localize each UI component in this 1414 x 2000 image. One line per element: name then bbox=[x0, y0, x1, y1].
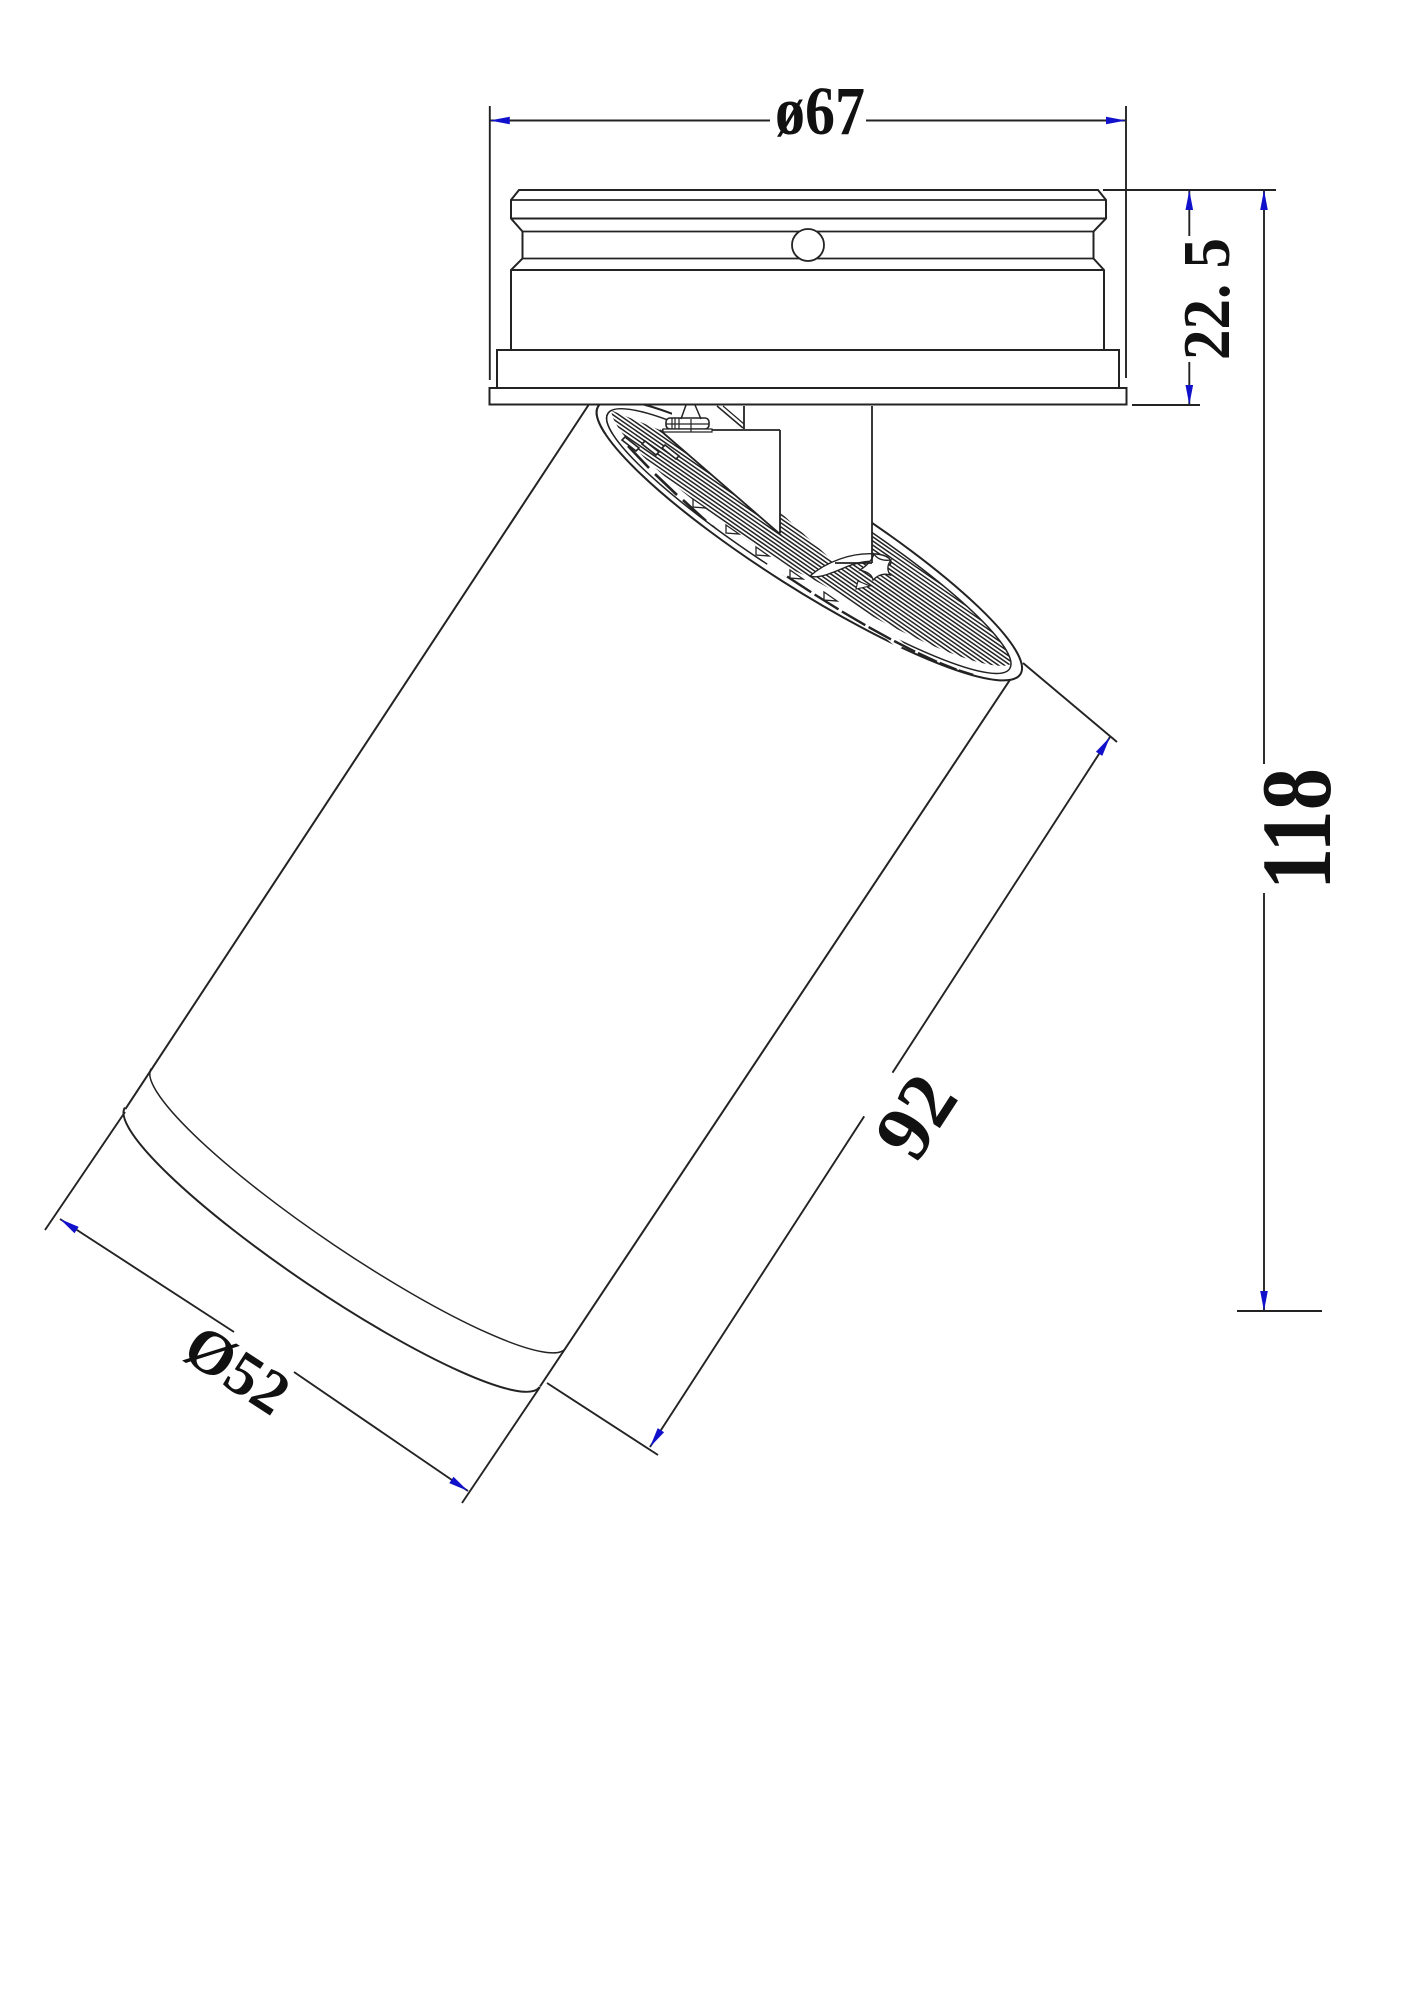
svg-text:22. 5: 22. 5 bbox=[1170, 238, 1244, 360]
svg-text:118: 118 bbox=[1241, 768, 1352, 890]
svg-text:ø67: ø67 bbox=[775, 73, 865, 149]
